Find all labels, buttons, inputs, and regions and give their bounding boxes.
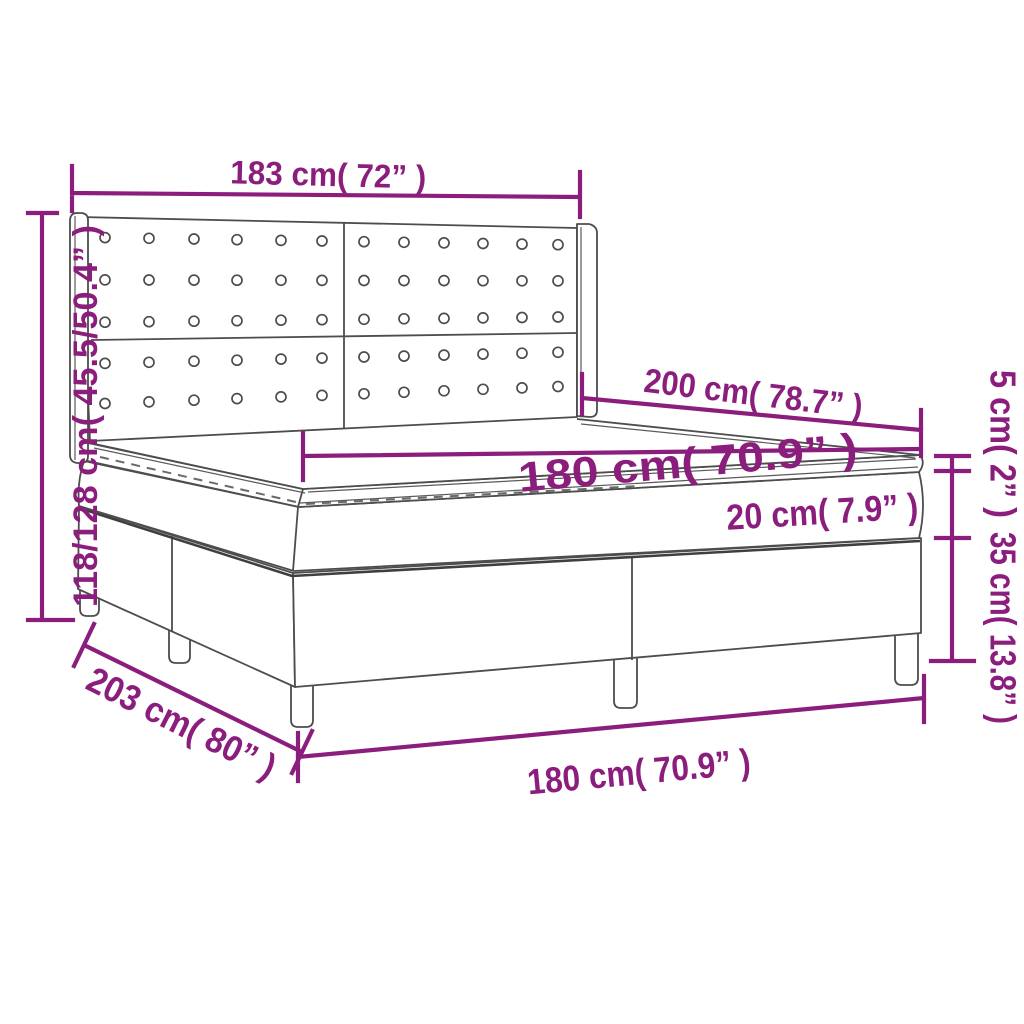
headboard-button [553, 312, 563, 322]
headboard-button [399, 237, 409, 247]
headboard-button [553, 347, 563, 357]
headboard-button [399, 314, 409, 324]
headboard-panel [80, 217, 577, 441]
headboard-button [317, 275, 327, 285]
dimension-topper-and-base-height: 5 cm( 2” ) 35 cm( 13.8” ) [931, 370, 1023, 724]
headboard-button [232, 275, 242, 285]
headboard-button [439, 238, 449, 248]
headboard-button [517, 383, 527, 393]
headboard-button [276, 315, 286, 325]
bed-leg [895, 630, 918, 685]
dimension-bottom-width: 180 cm( 70.9” ) [298, 676, 924, 803]
headboard-button [553, 276, 563, 286]
headboard-button [517, 313, 527, 323]
headboard-button [317, 315, 327, 325]
headboard-button [517, 276, 527, 286]
headboard-button [276, 235, 286, 245]
headboard-button [232, 355, 242, 365]
headboard-button [439, 313, 449, 323]
label-total-height: 118/128 cm( 45.5/50.4” ) [67, 225, 105, 607]
headboard-button [478, 239, 488, 249]
headboard-button [359, 314, 369, 324]
headboard-button [478, 349, 488, 359]
headboard-button [359, 237, 369, 247]
headboard-button [189, 356, 199, 366]
headboard-button [553, 240, 563, 250]
headboard-button [276, 275, 286, 285]
headboard-button [189, 234, 199, 244]
bed-dimension-diagram: 183 cm( 72” ) 118/128 cm( 45.5/50.4” ) 2… [0, 0, 1024, 1024]
label-headboard-width: 183 cm( 72” ) [230, 153, 427, 195]
headboard-button [359, 352, 369, 362]
headboard-button [189, 395, 199, 405]
headboard-button [553, 382, 563, 392]
headboard-button [144, 397, 154, 407]
headboard-button [439, 386, 449, 396]
headboard-button [517, 348, 527, 358]
headboard-button [317, 390, 327, 400]
dimension-headboard-width: 183 cm( 72” ) [72, 153, 580, 217]
label-total-length: 203 cm( 80” ) [80, 659, 283, 788]
headboard-button [399, 276, 409, 286]
headboard-button [232, 316, 242, 326]
headboard-button [144, 233, 154, 243]
headboard-button [439, 276, 449, 286]
headboard-button [399, 351, 409, 361]
headboard-button [478, 313, 488, 323]
headboard-button [144, 317, 154, 327]
label-bed-length: 200 cm( 78.7” ) [642, 362, 865, 427]
headboard-button [359, 389, 369, 399]
headboard-button [399, 387, 409, 397]
headboard-button [276, 354, 286, 364]
headboard-button [478, 276, 488, 286]
headboard-button [276, 392, 286, 402]
headboard-button [189, 275, 199, 285]
headboard-button [317, 353, 327, 363]
headboard-button [359, 276, 369, 286]
headboard-button [144, 275, 154, 285]
headboard-button [144, 357, 154, 367]
headboard-button [232, 394, 242, 404]
label-base-height: 35 cm( 13.8” ) [982, 532, 1023, 724]
headboard-button [317, 236, 327, 246]
dimension-total-height: 118/128 cm( 45.5/50.4” ) [28, 213, 105, 620]
label-topper-thickness: 5 cm( 2” ) [982, 370, 1023, 518]
bed-dimension-diagram-page: 183 cm( 72” ) 118/128 cm( 45.5/50.4” ) 2… [0, 0, 1024, 1024]
bed-leg [614, 653, 637, 708]
label-bottom-width: 180 cm( 70.9” ) [525, 741, 752, 803]
headboard-button [189, 316, 199, 326]
headboard-button [517, 239, 527, 249]
headboard-button [478, 384, 488, 394]
dimension-line [931, 456, 974, 661]
headboard-button [232, 235, 242, 245]
headboard-button [439, 350, 449, 360]
